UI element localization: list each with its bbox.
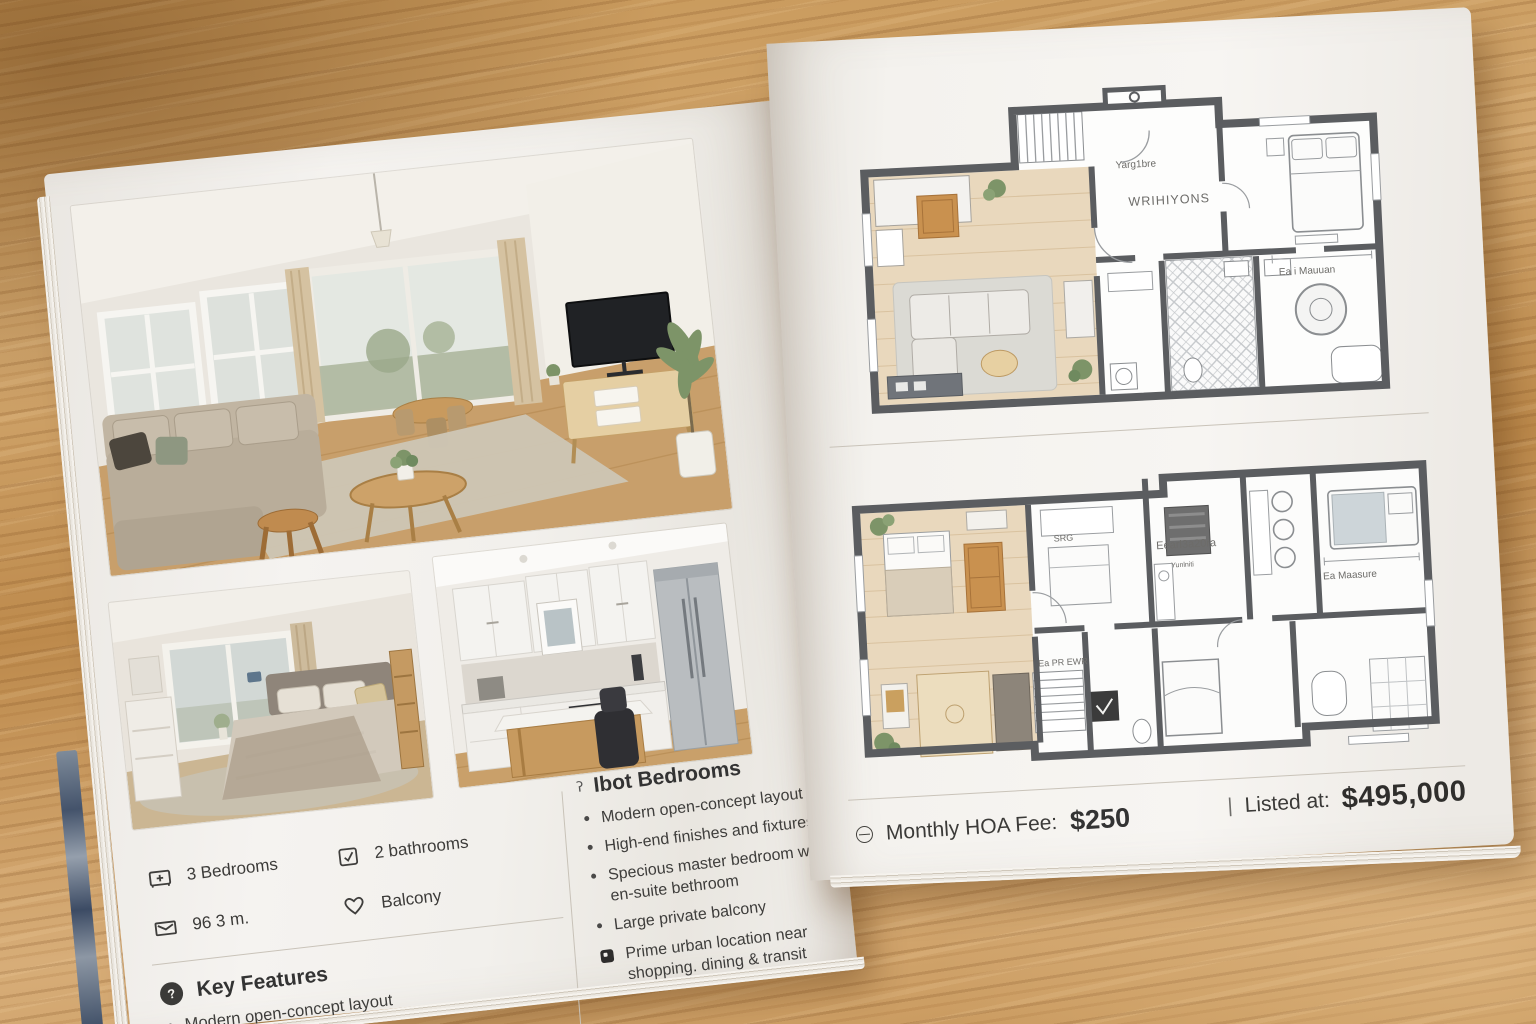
living-room-photo bbox=[71, 139, 733, 576]
listing-label: Listed at: bbox=[1244, 788, 1331, 817]
bullet-dot-icon bbox=[591, 874, 597, 880]
kitchen-illustration bbox=[433, 523, 753, 787]
floor-plan-bottom: SRG Yunlniti Eearl3a20ra Ea Maasure Ea P… bbox=[808, 429, 1464, 792]
floor-plan-top-drawing: Yarg1bre WRIHIYONS Ea i Mauuan bbox=[811, 51, 1427, 432]
stat-area-label: 96 3 m. bbox=[191, 908, 250, 934]
stat-area: 96 3 m. bbox=[151, 895, 343, 943]
bullet-dot-icon bbox=[597, 923, 603, 929]
brochure-left-page: 3 Bedrooms 2 bathrooms 96 3 m. bbox=[44, 101, 858, 1024]
bedroom-illustration bbox=[109, 571, 434, 830]
hoa-fee-label: Monthly HOA Fee: bbox=[885, 810, 1058, 845]
bed-icon bbox=[146, 864, 175, 893]
floor-plan-top: Yarg1bre WRIHIYONS Ea i Mauuan bbox=[811, 51, 1427, 432]
key-icon-glyph: ? bbox=[166, 985, 178, 1002]
area-envelope-icon bbox=[151, 913, 180, 942]
hoa-fee-value: $250 bbox=[1069, 802, 1131, 837]
bathroom-check-icon bbox=[334, 842, 362, 870]
stat-bedrooms: 3 Bedrooms bbox=[146, 845, 338, 893]
glottal-mark-icon: ʔ bbox=[576, 779, 585, 796]
brochure-spread: 3 Bedrooms 2 bathrooms 96 3 m. bbox=[6, 0, 1536, 1024]
listing-value: $495,000 bbox=[1341, 775, 1468, 816]
vertical-bar-icon: | bbox=[1227, 795, 1234, 818]
bullet-dot-icon bbox=[584, 816, 590, 822]
price-bar: Monthly HOA Fee: $250 | Listed at: $495,… bbox=[855, 781, 1468, 850]
bullet-dot-icon bbox=[587, 845, 593, 851]
plan-room-label: SRG bbox=[1053, 533, 1073, 544]
listing-price: | Listed at: $495,000 bbox=[1227, 775, 1468, 823]
stat-bedrooms-label: 3 Bedrooms bbox=[186, 855, 279, 885]
hoa-fee: Monthly HOA Fee: $250 bbox=[855, 802, 1131, 850]
stat-bathrooms-label: 2 bathrooms bbox=[373, 833, 469, 864]
circle-dash-icon bbox=[855, 825, 873, 843]
key-features-title: Key Features bbox=[195, 963, 329, 1002]
key-features-section: ? Key Features Modern open-concept layou… bbox=[159, 935, 577, 1024]
key-icon: ? bbox=[157, 979, 185, 1007]
living-room-illustration bbox=[71, 139, 733, 576]
location-marker-icon bbox=[600, 948, 614, 962]
kitchen-photo bbox=[433, 523, 753, 787]
plan-room-label: Yarg1bre bbox=[1115, 158, 1156, 171]
balcony-heart-icon bbox=[340, 892, 369, 921]
wood-table-surface: 3 Bedrooms 2 bathrooms 96 3 m. bbox=[0, 0, 1536, 1024]
brochure-right-page: Yarg1bre WRIHIYONS Ea i Mauuan bbox=[766, 7, 1514, 881]
floor-plan-bottom-drawing: SRG Yunlniti Eearl3a20ra Ea Maasure Ea P… bbox=[808, 429, 1464, 792]
bedroom-photo bbox=[109, 571, 434, 830]
plan-room-label: Yunlniti bbox=[1171, 561, 1194, 569]
stat-balcony-label: Balcony bbox=[380, 886, 442, 913]
stat-balcony: Balcony bbox=[340, 870, 552, 920]
stat-bathrooms: 2 bathrooms bbox=[334, 821, 546, 871]
